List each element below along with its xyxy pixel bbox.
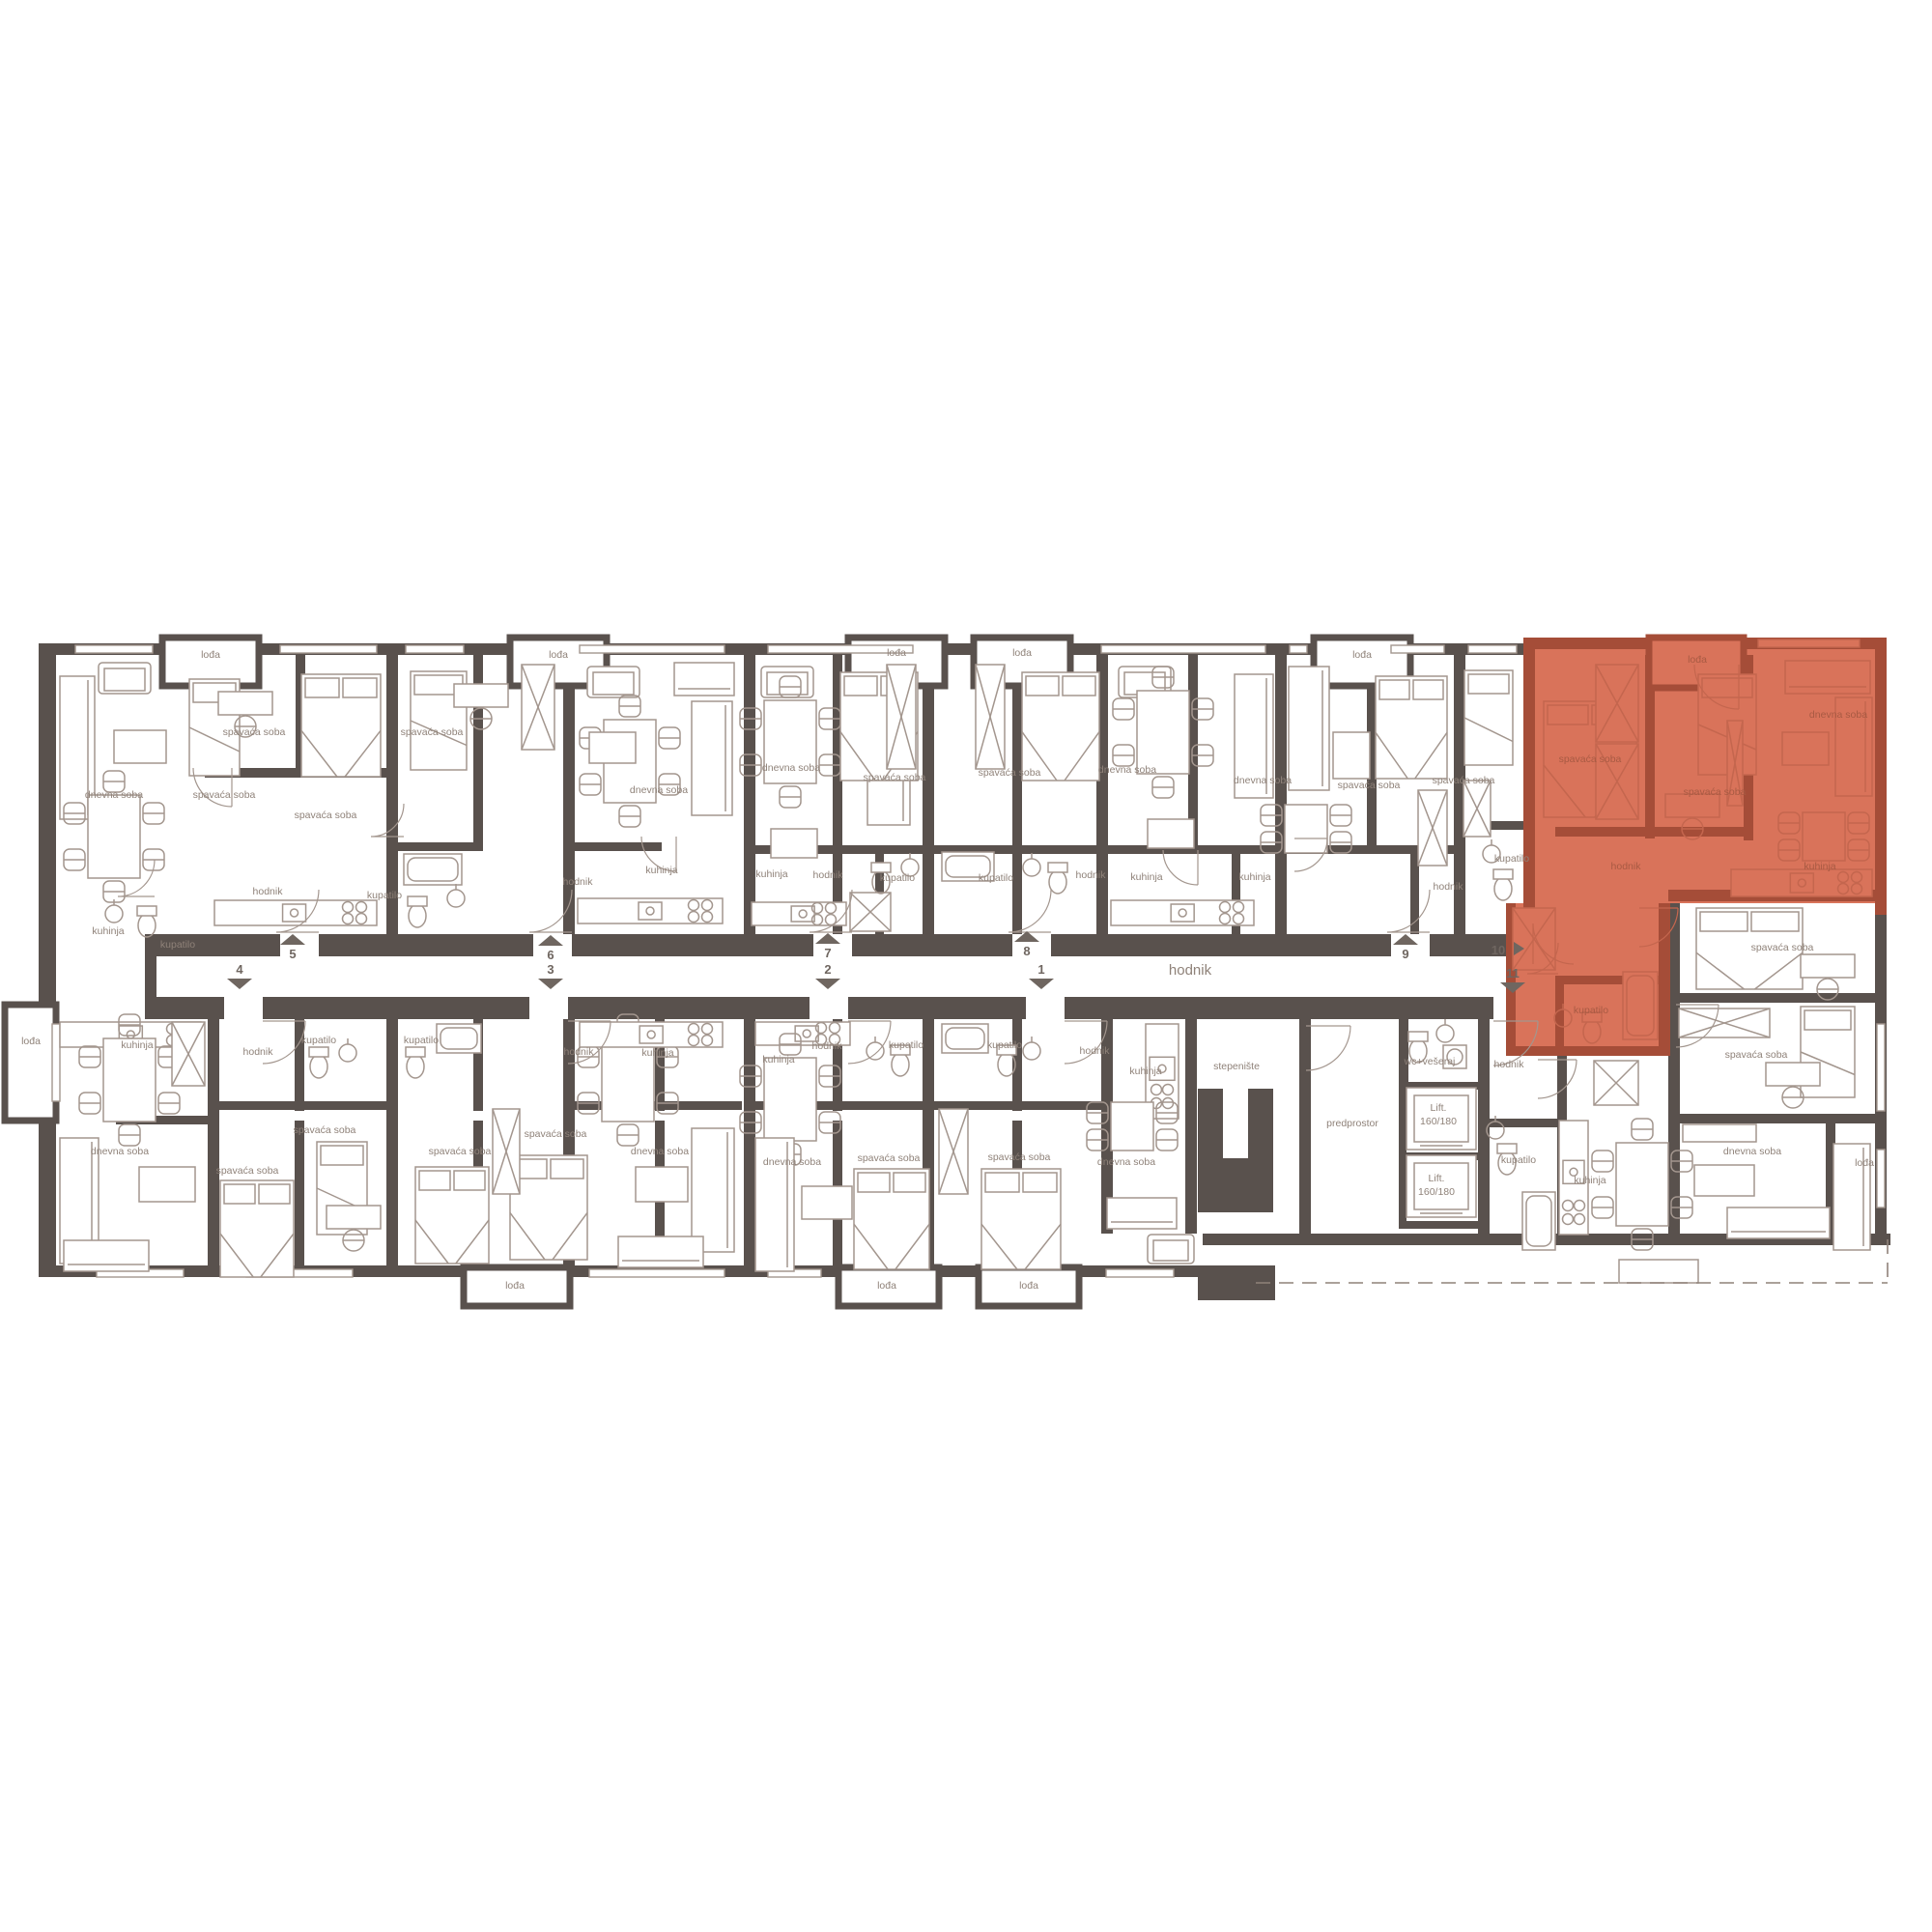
room-label: lođa (505, 1280, 525, 1292)
room-label: spavaća soba (979, 767, 1041, 779)
room-label: lođa (877, 1280, 896, 1292)
loggia (5, 1005, 56, 1121)
unit-4-marker: 4 (227, 962, 252, 989)
furniture-double-bed (854, 1169, 929, 1269)
wall-segment (744, 655, 755, 934)
furniture-wardrobe (522, 665, 554, 750)
furniture-wardrobe (172, 1022, 205, 1086)
wall-segment (1399, 1090, 1406, 1225)
room-label: kuhinja (1130, 871, 1162, 883)
room-label: dnevna soba (85, 789, 143, 801)
wall-segment (1668, 1114, 1877, 1123)
wall-segment (923, 655, 934, 934)
wall-segment (1051, 934, 1391, 956)
unit-number: 1 (1037, 962, 1044, 977)
furniture-sofa (1727, 1207, 1830, 1238)
furniture-wardrobe (1463, 781, 1491, 837)
window (75, 645, 153, 653)
furniture-double-bed (301, 674, 381, 777)
direction-arrow-icon (227, 979, 252, 989)
room-label: spavaća soba (1684, 786, 1747, 798)
furniture-sofa (692, 1128, 734, 1252)
window (280, 645, 377, 653)
highlighted-wall-segment (1506, 1046, 1670, 1056)
furniture-toilet (309, 1047, 328, 1078)
room-label: kupatilo (987, 1039, 1022, 1051)
furniture-kitchen-counter (752, 902, 846, 925)
direction-arrow-icon (280, 934, 305, 945)
furniture-bathtub (404, 854, 462, 885)
furniture-toilet (408, 896, 427, 927)
room-label: hodnik (1611, 861, 1642, 872)
direction-arrow-icon (815, 933, 840, 944)
room-label: dnevna soba (1234, 775, 1292, 786)
floor-plan: lođalođalođalođalođaspavaća sobaspavaća … (0, 0, 1932, 1932)
window (1391, 645, 1444, 653)
door-swing (1163, 850, 1198, 885)
room-label: kupatilo (889, 1039, 923, 1051)
room-label: Lift. (1429, 1173, 1445, 1184)
furniture-table (636, 1167, 688, 1202)
wall-segment (1275, 655, 1287, 934)
room-label: dnevna soba (1809, 709, 1867, 721)
highlighted-wall-segment (1555, 827, 1748, 837)
furniture-table (1619, 1260, 1698, 1283)
room-label: hodnik (1076, 869, 1107, 881)
room-label: kuhinja (645, 865, 677, 876)
wall-segment (145, 934, 156, 1019)
room-label: kupatilo (367, 890, 402, 901)
window (1468, 645, 1517, 653)
room-label: hodnik (812, 1040, 843, 1052)
unit-number: 2 (824, 962, 831, 977)
room-label: lođa (887, 647, 906, 659)
room-label: kuhinja (1574, 1175, 1605, 1186)
direction-arrow-icon (538, 935, 563, 946)
unit-3-marker: 3 (538, 962, 563, 989)
room-label: hodnik (253, 886, 284, 897)
furniture-armchair (587, 667, 639, 697)
furniture-desk (1766, 1063, 1820, 1108)
unit-number: 8 (1023, 944, 1030, 958)
furniture-kitchen-counter (580, 1022, 723, 1047)
highlighted-wall-segment (1659, 903, 1670, 1048)
room-label: dnevna soba (91, 1146, 149, 1157)
furniture-toilet (406, 1047, 425, 1078)
wall-segment (852, 934, 1012, 956)
wall-segment (39, 643, 56, 1277)
furniture-sink (1436, 1019, 1454, 1042)
room-label: hodnik (563, 876, 594, 888)
wall-segment (1488, 821, 1529, 830)
furniture-kitchen-counter (1111, 900, 1254, 925)
furniture-wardrobe (1679, 1009, 1770, 1037)
furniture-sink (1023, 853, 1040, 876)
room-label: kupatilo (404, 1035, 439, 1046)
window (1758, 639, 1860, 647)
room-label: 160/180 (1418, 1186, 1455, 1198)
wall-segment (1012, 655, 1022, 934)
room-label: hodnik (243, 1046, 274, 1058)
furniture-armchair (99, 663, 151, 694)
unit-number: 11 (1506, 966, 1520, 980)
furniture-sofa (674, 663, 734, 696)
furniture-sofa (618, 1236, 703, 1267)
window (1101, 645, 1265, 653)
room-label: spavaća soba (216, 1165, 279, 1177)
furniture-double-bed (415, 1167, 489, 1264)
furniture-toilet (137, 906, 156, 937)
furniture-sofa (692, 701, 732, 815)
room-label: lođa (549, 649, 568, 661)
furniture-table (1333, 732, 1370, 779)
furniture-armchair (1148, 1235, 1194, 1264)
furniture-sofa (1107, 1198, 1177, 1229)
furniture-wardrobe (976, 665, 1005, 769)
furniture-sink (1023, 1037, 1040, 1060)
furniture-double-bed (220, 1180, 294, 1277)
furniture-table (1694, 1165, 1754, 1196)
room-label: spavaća soba (294, 1124, 356, 1136)
furniture-toilet (1048, 863, 1067, 894)
furniture-double-bed (1376, 676, 1447, 779)
room-label: dnevna soba (630, 784, 688, 796)
room-label: spavaća soba (858, 1152, 921, 1164)
room-label: hodnik (1080, 1045, 1111, 1057)
wall-segment (1399, 1221, 1478, 1229)
room-label: lođa (1688, 654, 1707, 666)
room-label: lođa (1855, 1157, 1874, 1169)
furniture-bathtub (1623, 972, 1658, 1039)
room-label: kuhinja (121, 1039, 153, 1051)
unit-7-marker: 7 (815, 933, 840, 960)
window (1877, 1024, 1885, 1111)
unit-9-marker: 9 (1393, 934, 1418, 961)
room-label: hodnik (564, 1046, 595, 1058)
furniture-desk (1801, 954, 1855, 1000)
door-swing (1306, 1026, 1350, 1070)
boundary-dashed-line (1256, 1239, 1888, 1283)
furniture-double-bed (1022, 672, 1099, 781)
furniture-wardrobe (1513, 908, 1555, 970)
furniture-wardrobe (939, 1109, 968, 1194)
window (580, 645, 724, 653)
window (52, 1024, 60, 1101)
furniture-wardrobe (1596, 665, 1638, 742)
room-label: kuhinja (1238, 871, 1270, 883)
window (1290, 645, 1307, 653)
highlighted-wall-segment (1875, 638, 1887, 915)
wall-segment (219, 1101, 391, 1110)
room-label: kuhinja (92, 925, 124, 937)
wall-segment (848, 997, 1026, 1019)
unit-number: 5 (289, 947, 296, 961)
room-label: dnevna soba (1723, 1146, 1781, 1157)
room-label: kupatilo (1494, 853, 1529, 865)
furniture-sink (447, 884, 465, 907)
unit-number: 3 (547, 962, 554, 977)
floor-plan-page: lođalođalođalođalođaspavaća sobaspavaća … (0, 0, 1932, 1932)
furniture-bathtub (1522, 1192, 1555, 1250)
unit-number: 10 (1492, 943, 1505, 957)
room-label: spavaća soba (1559, 753, 1622, 765)
furniture-toilet (1493, 869, 1513, 900)
wall-segment (563, 655, 575, 934)
window (1106, 1269, 1174, 1277)
wall-segment (386, 1019, 398, 1265)
room-label: wc+vešeraj (1404, 1056, 1456, 1067)
wall-segment (1185, 1019, 1197, 1234)
room-label: hodnik (1494, 1059, 1525, 1070)
room-label: spavaća soba (1751, 942, 1814, 953)
window (406, 645, 464, 653)
furniture-sofa (1785, 661, 1870, 694)
wall-segment (1065, 997, 1493, 1019)
furniture-bathtub (942, 1024, 988, 1053)
furniture-wardrobe (850, 893, 891, 931)
room-label: spavaća soba (1433, 775, 1495, 786)
wall-segment (575, 842, 662, 851)
room-label: kuhinja (1804, 861, 1835, 872)
furniture-table (589, 732, 636, 763)
wall-segment (263, 997, 529, 1019)
furniture-sofa (1289, 667, 1329, 790)
direction-arrow-icon (1029, 979, 1054, 989)
room-label: spavaća soba (429, 1146, 492, 1157)
room-label: stepenište (1213, 1061, 1260, 1072)
unit-8-marker: 8 (1014, 931, 1039, 958)
unit-number: 9 (1402, 947, 1408, 961)
room-label: kuhinja (755, 868, 787, 880)
window (589, 1269, 724, 1277)
room-label: kupatilo (1501, 1154, 1536, 1166)
window (1877, 1150, 1885, 1207)
furniture-sink (339, 1038, 356, 1062)
unit-number: 7 (824, 946, 831, 960)
room-label: spavaća soba (525, 1128, 587, 1140)
furniture-single-bed (1464, 670, 1513, 765)
unit-number: 4 (236, 962, 243, 977)
room-label: spavaća soba (1338, 780, 1401, 791)
direction-arrow-icon (1393, 934, 1418, 945)
room-label: kupatilo (160, 939, 195, 951)
room-label: kuhinja (762, 1054, 794, 1065)
wall-segment (295, 1019, 304, 1111)
furniture-table (1148, 819, 1194, 848)
wall-segment (295, 1121, 304, 1265)
room-label: hodnik (1434, 881, 1464, 893)
wall-segment (1399, 1019, 1408, 1087)
room-label: dnevna soba (631, 1146, 689, 1157)
room-label: dnevna soba (762, 762, 820, 774)
furniture-kitchen-counter (1731, 869, 1872, 896)
room-label: kupatilo (301, 1035, 336, 1046)
room-label: dnevna soba (1097, 1156, 1155, 1168)
room-label: spavaća soba (295, 810, 357, 821)
room-label: spavaća soba (223, 726, 286, 738)
furniture-table (771, 829, 817, 858)
wall-segment (568, 997, 810, 1019)
furniture-armchair (761, 667, 813, 697)
wall-segment (145, 997, 224, 1019)
furniture-kitchen-counter (214, 900, 377, 925)
room-label: predprostor (1326, 1118, 1378, 1129)
stairwell-void (1223, 1089, 1248, 1158)
furniture-double-bed (510, 1155, 587, 1260)
room-label: spavaća soba (193, 789, 256, 801)
direction-arrow-icon (538, 979, 563, 989)
furniture-wardrobe (493, 1109, 520, 1194)
room-label: lođa (1352, 649, 1372, 661)
room-label: lođa (1019, 1280, 1038, 1292)
room-label: spavaća soba (988, 1151, 1051, 1163)
furniture-desk (327, 1206, 381, 1251)
room-label: spavaća soba (1725, 1049, 1788, 1061)
door-swing (1387, 890, 1430, 932)
unit-number: 6 (547, 948, 554, 962)
unit-5-marker: 5 (280, 934, 305, 961)
room-label: kupatilo (979, 872, 1013, 884)
wall-segment (398, 842, 480, 851)
furniture-table (1782, 732, 1829, 765)
wall-segment (1012, 1019, 1022, 1111)
direction-arrow-icon (815, 979, 840, 989)
room-label: kuhinja (641, 1047, 673, 1059)
furniture-wardrobe (1418, 790, 1447, 866)
furniture-table (1683, 1124, 1756, 1142)
highlighted-wall-segment (1555, 984, 1564, 1056)
room-label: kupatilo (1574, 1005, 1608, 1016)
room-label: 160/180 (1420, 1116, 1457, 1127)
room-label: lođa (201, 649, 220, 661)
furniture-double-bed (981, 1169, 1061, 1269)
wall-segment (319, 934, 533, 956)
highlighted-wall-segment (1523, 638, 1535, 917)
room-label: dnevna soba (1098, 764, 1156, 776)
room-label: spavaća soba (401, 726, 464, 738)
room-label: lođa (1012, 647, 1032, 659)
furniture-sofa (64, 1240, 149, 1271)
door-swing (1065, 1021, 1107, 1064)
wall-segment (1299, 1019, 1311, 1234)
furniture-table (114, 730, 166, 763)
wall-segment (208, 1019, 219, 1265)
furniture-wardrobe (887, 665, 916, 769)
furniture-kitchen-counter (578, 898, 723, 923)
unit-2-marker: 2 (815, 962, 840, 989)
room-label: Lift. (1431, 1102, 1447, 1114)
room-label: kupatilo (880, 872, 915, 884)
unit-1-marker: 1 (1029, 962, 1054, 989)
furniture-table (802, 1186, 852, 1219)
room-label: kuhinja (1129, 1065, 1161, 1077)
furniture-bathtub (437, 1024, 481, 1053)
room-label: lođa (21, 1036, 41, 1047)
furniture-wardrobe (1594, 1061, 1638, 1105)
wall-segment (572, 934, 813, 956)
furniture-table (139, 1167, 195, 1202)
room-label: spavaća soba (864, 772, 926, 783)
wall-segment (1668, 993, 1877, 1003)
room-label: dnevna soba (763, 1156, 821, 1168)
wall-segment (744, 1019, 755, 1265)
wall-segment (1108, 845, 1282, 854)
unit-6-marker: 6 (538, 935, 563, 962)
room-label: hodnik (1169, 962, 1212, 979)
room-label: hodnik (813, 869, 844, 881)
